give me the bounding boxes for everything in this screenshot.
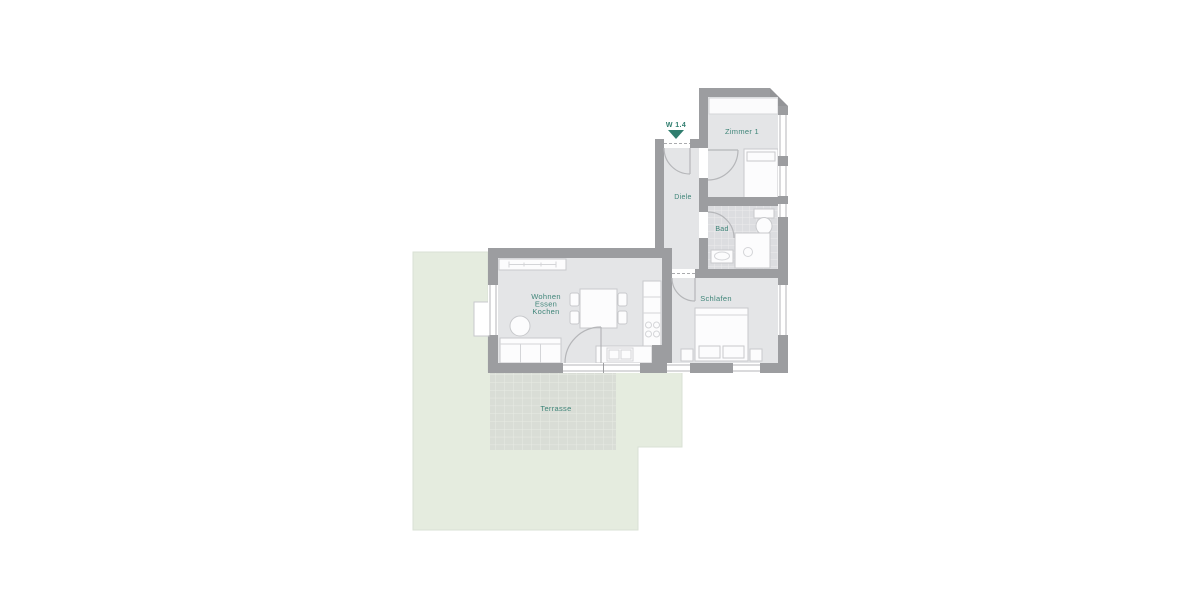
unit-marker: W 1.4: [666, 122, 686, 139]
chair-3: [618, 293, 627, 306]
chair-2: [570, 311, 579, 324]
unit-marker-label: W 1.4: [666, 122, 686, 129]
wall-zimmer1-top: [699, 88, 770, 97]
schlafen-pillow-right: [723, 346, 744, 358]
schlafen-pillow-left: [699, 346, 720, 358]
floor-plan-canvas: Zimmer 1 Diele Bad Schlafen Wohnen Essen…: [0, 0, 1200, 600]
nightstand-left: [681, 349, 693, 361]
toilet-bowl: [756, 218, 772, 235]
zimmer1-door-opening: [699, 148, 708, 178]
label-living-line3: Kochen: [532, 307, 559, 316]
kitchen-counter-bottom: [596, 346, 652, 363]
dining-table: [580, 289, 617, 328]
wall-bad-top: [699, 197, 778, 206]
wall-living-top: [488, 248, 665, 258]
wall-mid: [662, 248, 672, 363]
bad-door-opening: [699, 212, 708, 238]
floor-plan-drawing: Zimmer 1 Diele Bad Schlafen Wohnen Essen…: [0, 0, 1200, 600]
wall-diele-east: [699, 97, 708, 269]
chair-4: [618, 311, 627, 324]
zimmer1-pillow: [747, 152, 775, 161]
label-terrasse: Terrasse: [540, 404, 571, 413]
chair-1: [570, 293, 579, 306]
label-zimmer1: Zimmer 1: [725, 127, 759, 136]
nightstand-right: [750, 349, 762, 361]
wall-kitchen-stub: [652, 345, 662, 363]
window-sill-west: [474, 302, 489, 336]
toilet-tank: [754, 209, 774, 218]
wall-diele-west: [655, 139, 664, 258]
label-bad: Bad: [715, 226, 728, 233]
sofa: [500, 338, 561, 363]
zimmer1-wardrobe: [709, 98, 778, 114]
unit-marker-arrow-icon: [668, 130, 684, 139]
round-table: [510, 316, 530, 336]
label-schlafen: Schlafen: [700, 294, 732, 303]
label-diele: Diele: [674, 194, 691, 201]
